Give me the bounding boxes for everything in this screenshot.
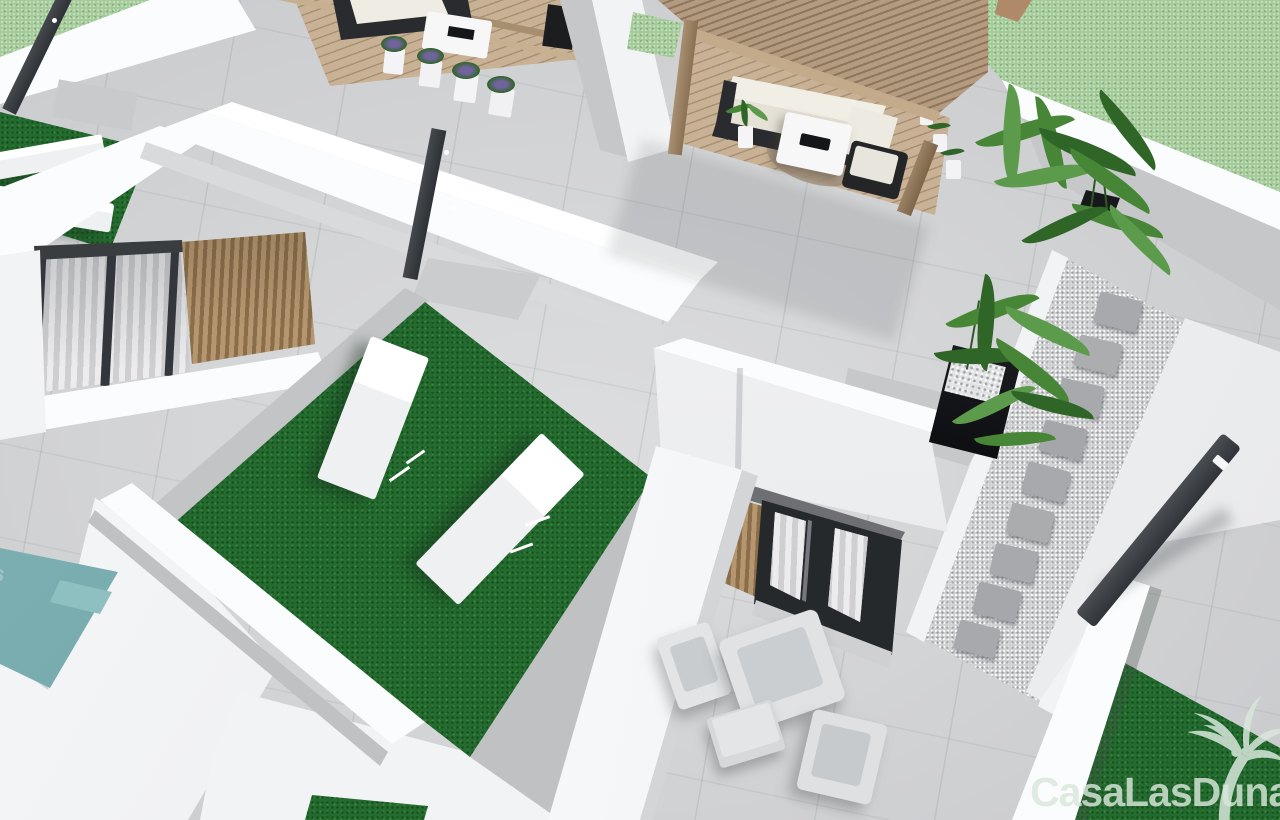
watermark-text: CasaLasDunas [1030,769,1280,816]
planter-pot [946,160,961,179]
shower-tap-dot [452,206,456,210]
lavender-plant [487,76,515,93]
lavender-plant [381,36,407,52]
render-canvas: CasaLasDunas CasaLasDunas [0,0,1280,820]
shower-head-dot [52,18,57,23]
shower-head-dot [444,150,449,155]
small-plant-pot [738,126,753,148]
lavender-plant [417,48,444,64]
lavender-plant [452,62,480,79]
